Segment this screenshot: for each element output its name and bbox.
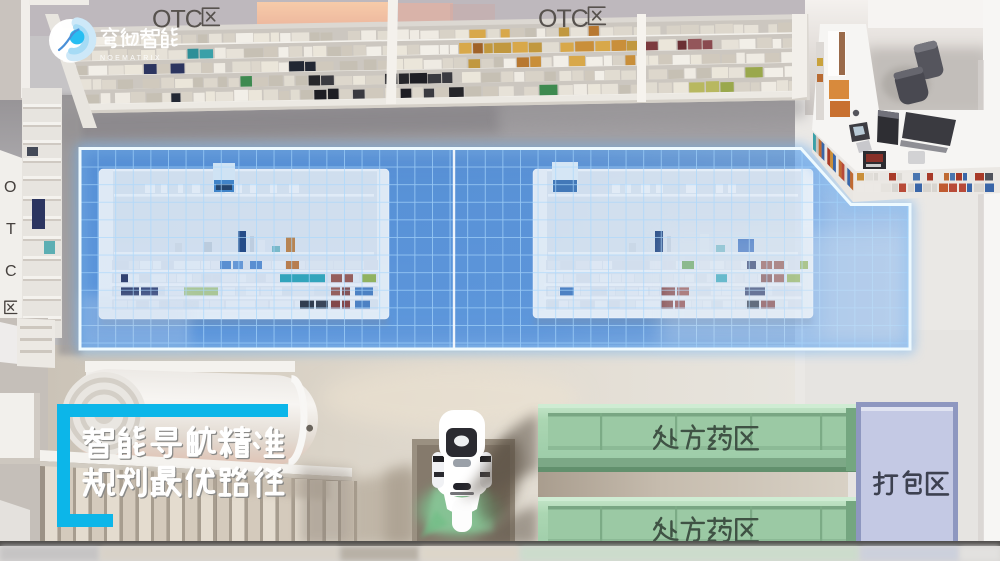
svg-text:OTC: OTC	[538, 5, 589, 33]
svg-text:O: O	[4, 179, 16, 196]
svg-text:NOEMATRIX: NOEMATRIX	[100, 55, 162, 62]
svg-text:C: C	[5, 263, 17, 280]
svg-text:T: T	[6, 221, 16, 238]
